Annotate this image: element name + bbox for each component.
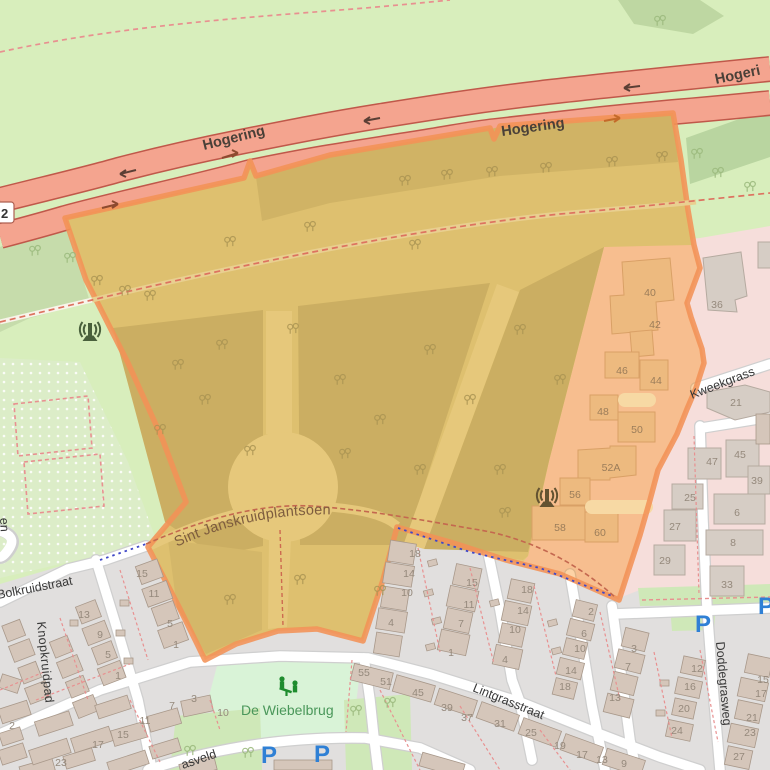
svg-text:4: 4 (388, 617, 394, 629)
svg-text:11: 11 (140, 715, 151, 727)
svg-text:17: 17 (92, 739, 104, 751)
svg-text:15: 15 (466, 577, 478, 589)
svg-text:10: 10 (217, 707, 229, 719)
svg-text:58: 58 (554, 522, 566, 534)
svg-text:39: 39 (441, 702, 453, 714)
svg-text:37: 37 (461, 712, 473, 724)
svg-text:6: 6 (734, 507, 740, 519)
svg-text:10: 10 (401, 587, 413, 599)
svg-text:2: 2 (1, 206, 8, 221)
svg-text:13: 13 (78, 609, 90, 621)
svg-text:42: 42 (649, 319, 661, 331)
svg-text:50: 50 (631, 424, 643, 436)
svg-text:33: 33 (721, 579, 733, 591)
svg-text:24: 24 (671, 725, 683, 737)
svg-text:36: 36 (711, 299, 723, 311)
svg-text:17: 17 (576, 749, 588, 761)
svg-text:3: 3 (631, 643, 637, 655)
svg-text:21: 21 (746, 712, 758, 724)
svg-text:3: 3 (191, 693, 197, 705)
svg-text:23: 23 (55, 757, 67, 769)
svg-text:P: P (695, 611, 711, 638)
svg-text:P: P (758, 593, 770, 620)
svg-text:25: 25 (525, 727, 537, 739)
svg-text:23: 23 (744, 727, 756, 739)
svg-text:15: 15 (757, 674, 769, 686)
svg-text:39: 39 (751, 475, 763, 487)
svg-text:11: 11 (149, 588, 160, 600)
svg-text:48: 48 (597, 406, 609, 418)
svg-text:5: 5 (167, 618, 173, 630)
svg-text:29: 29 (659, 555, 671, 567)
svg-text:25: 25 (684, 492, 696, 504)
svg-text:1: 1 (173, 639, 179, 651)
svg-text:16: 16 (684, 681, 696, 693)
svg-text:11: 11 (464, 599, 475, 611)
svg-text:60: 60 (594, 527, 606, 539)
svg-text:14: 14 (403, 568, 415, 580)
svg-text:55: 55 (358, 667, 370, 679)
svg-text:17: 17 (755, 688, 767, 700)
svg-text:40: 40 (644, 287, 656, 299)
svg-text:2: 2 (588, 606, 594, 618)
svg-text:44: 44 (650, 375, 662, 387)
svg-text:45: 45 (734, 449, 746, 461)
svg-text:9: 9 (97, 629, 103, 641)
svg-text:45: 45 (412, 687, 424, 699)
svg-text:14: 14 (517, 605, 529, 617)
svg-text:en: en (0, 517, 12, 532)
svg-text:P: P (314, 741, 330, 768)
svg-text:18: 18 (409, 548, 421, 560)
svg-text:7: 7 (625, 661, 631, 673)
svg-text:18: 18 (559, 681, 571, 693)
svg-text:2: 2 (9, 720, 15, 732)
svg-text:9: 9 (621, 758, 627, 770)
svg-text:47: 47 (706, 456, 718, 468)
svg-text:8: 8 (730, 537, 736, 549)
svg-text:10: 10 (574, 643, 586, 655)
svg-text:12: 12 (691, 663, 703, 675)
svg-text:14: 14 (565, 665, 577, 677)
svg-text:15: 15 (136, 568, 148, 580)
svg-text:51: 51 (380, 676, 392, 688)
svg-text:1: 1 (448, 647, 454, 659)
svg-text:P: P (261, 742, 277, 769)
svg-text:56: 56 (569, 489, 581, 501)
svg-text:5: 5 (105, 649, 111, 661)
svg-text:10: 10 (509, 624, 521, 636)
svg-text:7: 7 (458, 618, 464, 630)
svg-text:20: 20 (678, 703, 690, 715)
svg-text:13: 13 (596, 754, 608, 766)
svg-text:52A: 52A (602, 462, 621, 474)
svg-text:6: 6 (581, 628, 587, 640)
svg-text:21: 21 (730, 397, 742, 409)
svg-text:15: 15 (117, 729, 129, 741)
svg-text:13: 13 (609, 692, 621, 704)
svg-text:46: 46 (616, 365, 628, 377)
svg-text:7: 7 (169, 700, 175, 712)
svg-text:18: 18 (521, 584, 533, 596)
svg-text:27: 27 (669, 521, 681, 533)
svg-text:27: 27 (733, 751, 745, 763)
svg-text:19: 19 (554, 740, 566, 752)
svg-text:1: 1 (115, 670, 121, 682)
svg-text:De Wiebelbrug: De Wiebelbrug (241, 702, 334, 718)
svg-text:4: 4 (502, 654, 508, 666)
svg-text:31: 31 (494, 718, 506, 730)
